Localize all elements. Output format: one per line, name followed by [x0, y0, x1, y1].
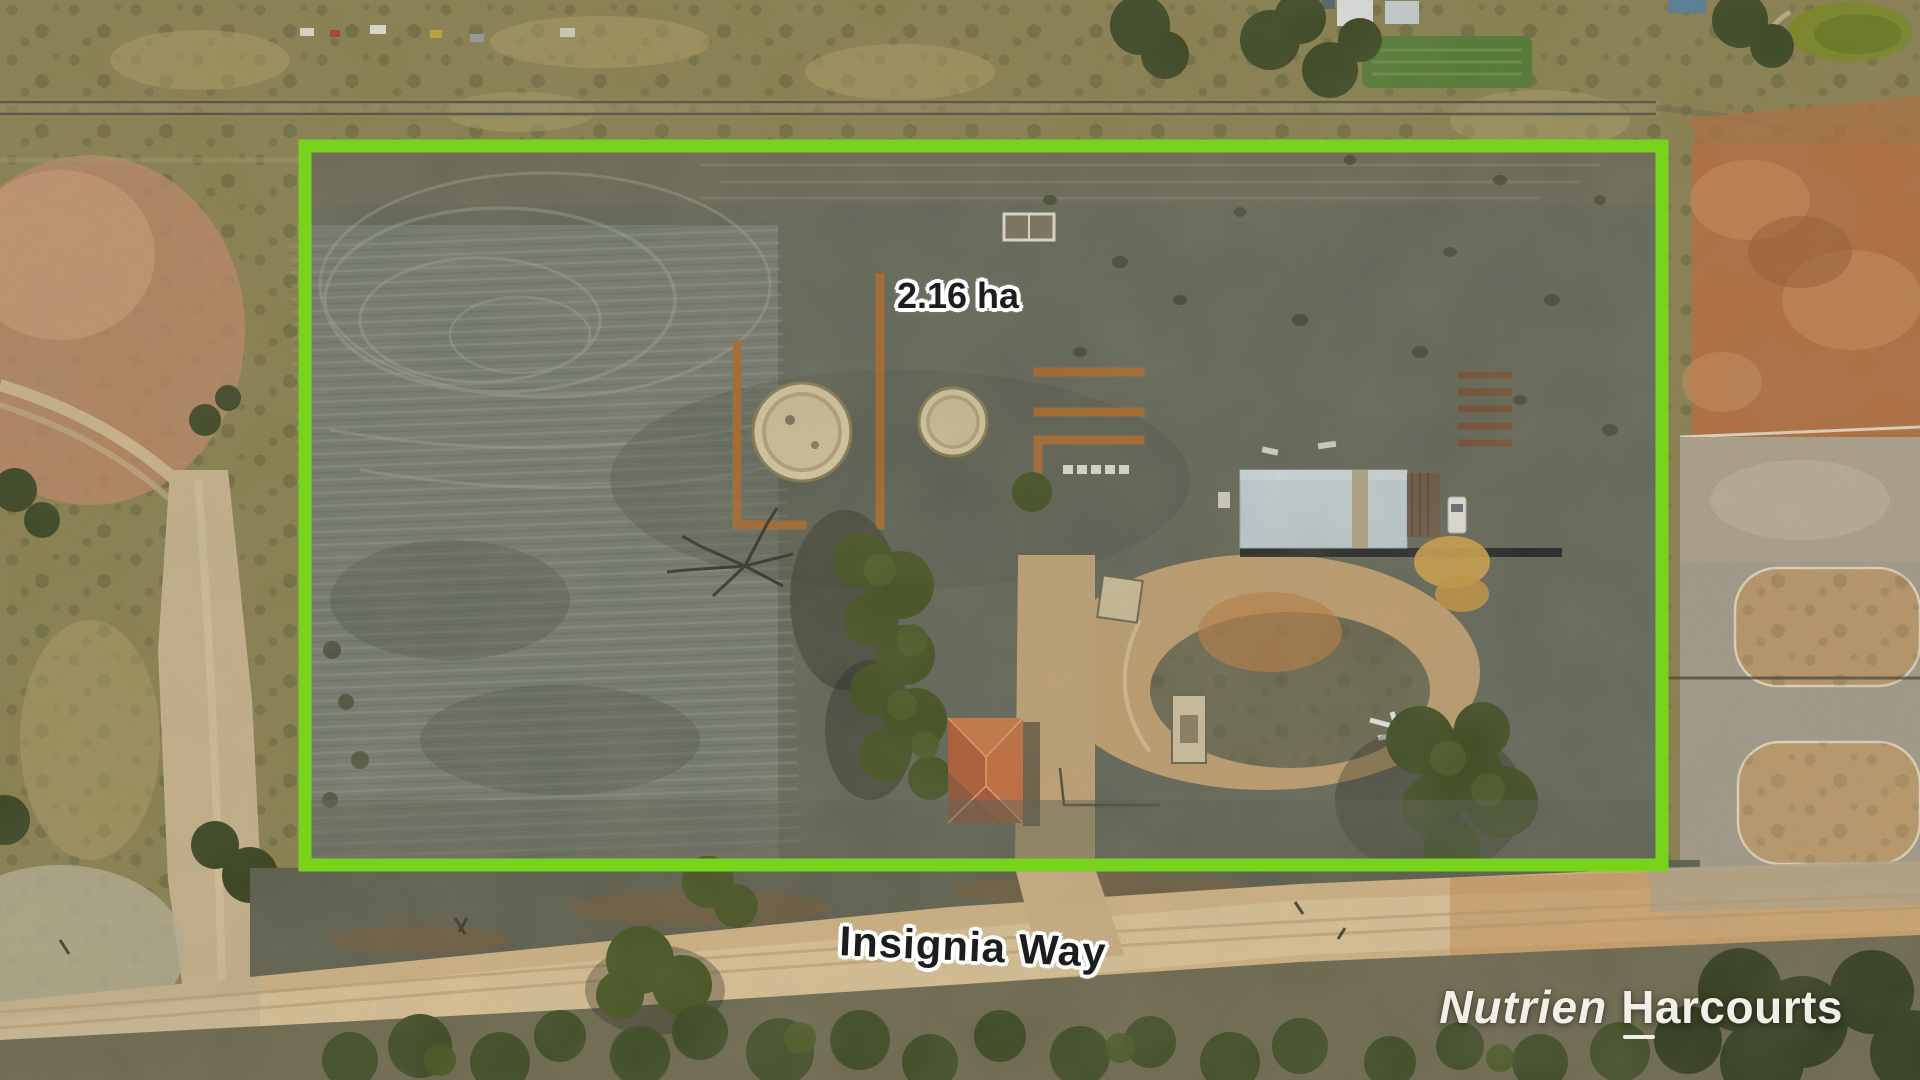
brand-harcourts-text: Harcourts [1621, 981, 1843, 1033]
area-label: 2.16 ha [897, 275, 1019, 317]
brand-harcourts: Harcourts [1621, 984, 1843, 1030]
aerial-photograph [0, 0, 1920, 1080]
aerial-photo-page: 2.16 ha Insignia Way NutrienHarcourts [0, 0, 1920, 1080]
harcourts-h-underline [1623, 1035, 1655, 1039]
grain-overlay [0, 0, 1920, 1080]
brand-nutrien: Nutrien [1439, 981, 1607, 1033]
brand-watermark: NutrienHarcourts [1439, 984, 1843, 1030]
